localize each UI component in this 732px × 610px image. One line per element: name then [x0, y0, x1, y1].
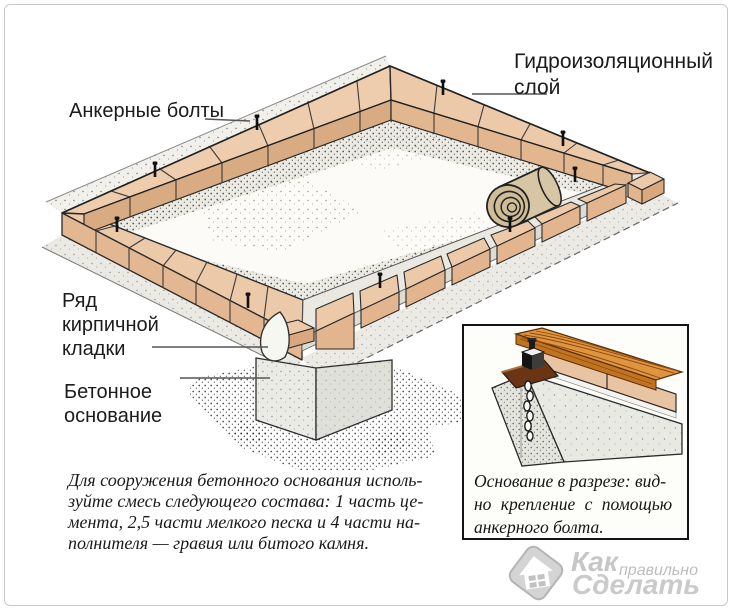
label-brick-row-line1: Ряд: [62, 289, 159, 313]
inset-cutaway-drawing: [464, 326, 687, 470]
note-line4: полнителя — гравия или битого камня.: [68, 533, 468, 554]
inset-box: Основание в разрезе: вид- но крепление с…: [462, 324, 689, 540]
label-waterproofing-layer: Гидроизоляционный слой: [514, 49, 713, 101]
label-brick-row: Ряд кирпичной кладки: [62, 289, 159, 361]
label-anchor-bolts: Анкерные болты: [69, 99, 224, 123]
label-concrete-base-line2: основание: [64, 404, 162, 428]
watermark-house-logo-icon: [505, 543, 567, 603]
label-concrete-base: Бетонное основание: [64, 380, 162, 428]
mix-recipe-note: Для сооружения бетонного основания испол…: [68, 470, 468, 554]
inset-caption-line3: анкерного болта.: [474, 516, 679, 539]
note-line1: Для сооружения бетонного основания испол…: [68, 470, 468, 491]
label-brick-row-line2: кирпичной: [62, 313, 159, 337]
label-concrete-base-line1: Бетонное: [64, 380, 162, 404]
watermark-word3: Сделать: [572, 569, 700, 601]
inset-caption-line1: Основание в разрезе: вид-: [474, 470, 679, 493]
inset-caption-line2: но крепление с помощью: [474, 493, 679, 516]
inset-caption: Основание в разрезе: вид- но крепление с…: [474, 470, 679, 539]
illustration-page: Анкерные болты Гидроизоляционный слой Ря…: [0, 0, 732, 610]
note-line2: зуйте смесь следующего состава: 1 часть …: [68, 491, 468, 512]
note-line3: мента, 2,5 части мелкого песка и 4 части…: [68, 512, 468, 533]
label-brick-row-line3: кладки: [62, 337, 159, 361]
label-waterproofing-line1: Гидроизоляционный: [514, 49, 713, 75]
label-waterproofing-line2: слой: [514, 75, 713, 101]
